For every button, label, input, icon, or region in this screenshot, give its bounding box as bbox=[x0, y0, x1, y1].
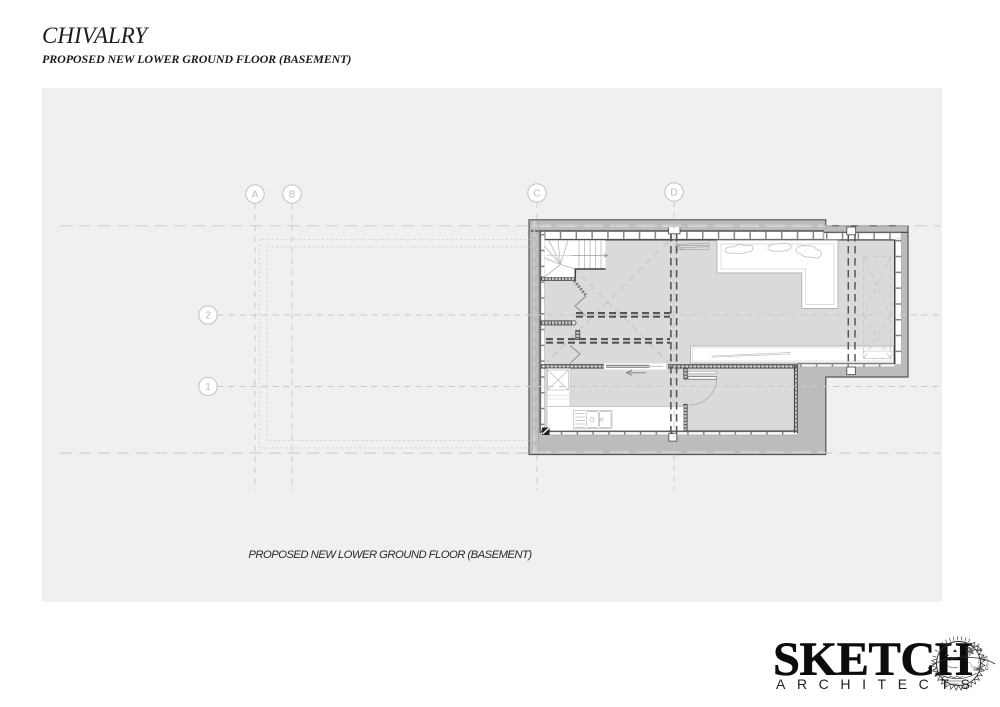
svg-text:A: A bbox=[252, 190, 259, 201]
svg-text:2: 2 bbox=[205, 311, 211, 322]
svg-text:D: D bbox=[670, 188, 677, 199]
svg-text:B: B bbox=[289, 190, 296, 201]
svg-text:C: C bbox=[533, 189, 540, 200]
svg-text:1: 1 bbox=[205, 382, 211, 393]
